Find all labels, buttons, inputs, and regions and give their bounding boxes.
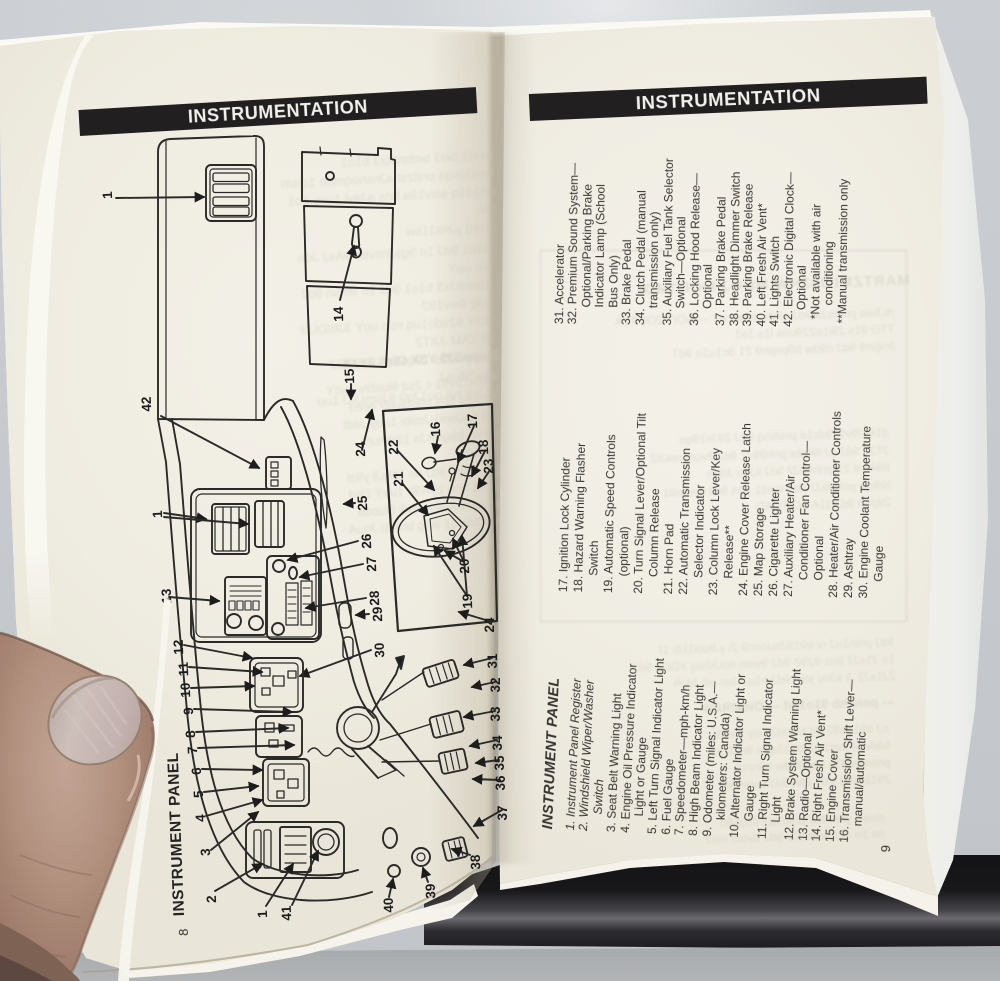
svg-text:18: 18 — [476, 439, 492, 455]
svg-text:37: 37 — [495, 805, 510, 820]
svg-text:35: 35 — [492, 755, 507, 771]
svg-text:20: 20 — [457, 558, 473, 574]
svg-text:23: 23 — [481, 458, 497, 474]
svg-text:19: 19 — [460, 593, 476, 609]
svg-text:32: 32 — [488, 677, 503, 692]
svg-text:1: 1 — [255, 910, 270, 919]
svg-text:1: 1 — [100, 191, 115, 200]
svg-text:1: 1 — [150, 510, 165, 519]
svg-text:24: 24 — [482, 617, 497, 633]
svg-text:24: 24 — [353, 441, 369, 457]
svg-text:36: 36 — [493, 775, 508, 791]
svg-text:17: 17 — [465, 413, 481, 429]
svg-text:26: 26 — [359, 533, 375, 549]
svg-text:28: 28 — [367, 590, 383, 606]
svg-text:41: 41 — [279, 905, 295, 921]
svg-text:39: 39 — [423, 883, 439, 899]
svg-text:21: 21 — [391, 471, 407, 487]
svg-text:29: 29 — [370, 606, 386, 622]
svg-text:33: 33 — [488, 706, 503, 722]
svg-text:38: 38 — [468, 854, 484, 870]
svg-text:40: 40 — [381, 897, 397, 913]
svg-text:16: 16 — [428, 421, 444, 437]
svg-text:34: 34 — [490, 735, 505, 751]
svg-text:30: 30 — [372, 642, 388, 658]
svg-text:14: 14 — [331, 306, 347, 322]
svg-text:31: 31 — [485, 653, 500, 669]
svg-text:22: 22 — [386, 439, 402, 455]
svg-text:42: 42 — [139, 396, 155, 412]
svg-text:25: 25 — [355, 495, 371, 511]
svg-text:27: 27 — [364, 556, 380, 572]
svg-text:15: 15 — [342, 368, 358, 384]
